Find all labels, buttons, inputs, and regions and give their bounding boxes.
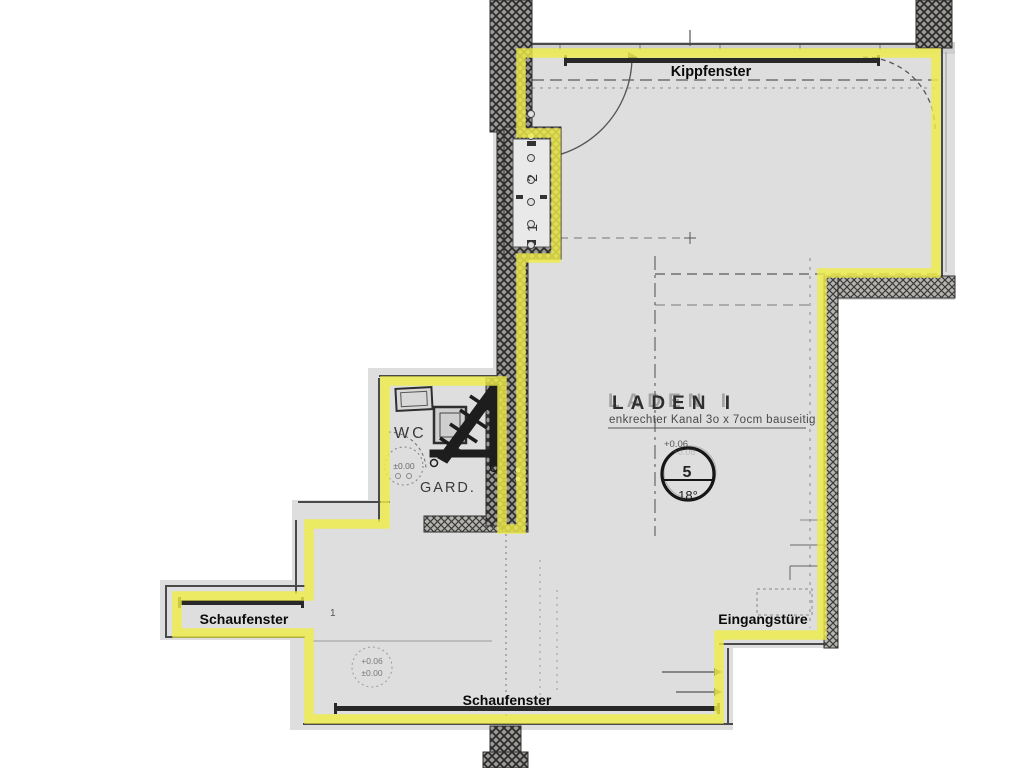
wc-elevation-stamp: ±0.00 bbox=[393, 461, 414, 471]
room-stamp-temperature: 18° bbox=[678, 488, 698, 503]
room-name: LADEN I bbox=[612, 393, 737, 414]
shaft-number-bottom: 1 bbox=[524, 224, 540, 232]
schaufenster-bottom-label: Schaufenster bbox=[463, 692, 552, 708]
schaufenster-left-label: Schaufenster bbox=[200, 611, 289, 627]
wall-column-top-right bbox=[916, 0, 952, 48]
room-stamp-number: 5 bbox=[683, 464, 692, 481]
floor-elevation-line1: +0.06 bbox=[361, 656, 383, 666]
kippfenster-label: Kippfenster bbox=[671, 64, 752, 80]
kippfenster-window-glass bbox=[566, 58, 878, 63]
garderobe-label: GARD. bbox=[420, 480, 476, 496]
kanal-note: enkrechter Kanal 3o x 7ocm bauseitig bbox=[609, 414, 816, 426]
shaft-number-top: 2 bbox=[524, 174, 540, 182]
floor-elevation-line2: ±0.00 bbox=[361, 668, 382, 678]
eingangstuere-label: Eingangstüre bbox=[718, 611, 808, 627]
wall-column-bottom-upper bbox=[490, 726, 521, 754]
floorplan-svg: ±0.00 5 18° +0.06 +0.06 +0.06 ±0.00 bbox=[0, 0, 1024, 768]
room-stamp-elevation-ghost: +0.06 bbox=[673, 447, 696, 457]
wc-label: WC bbox=[394, 425, 427, 442]
bay-mark: 1 bbox=[330, 608, 336, 619]
wall-column-bottom-lower bbox=[483, 752, 528, 768]
floorplan-scan: ±0.00 5 18° +0.06 +0.06 +0.06 ±0.00 bbox=[0, 0, 1024, 768]
wall-right-shelf bbox=[826, 276, 955, 298]
